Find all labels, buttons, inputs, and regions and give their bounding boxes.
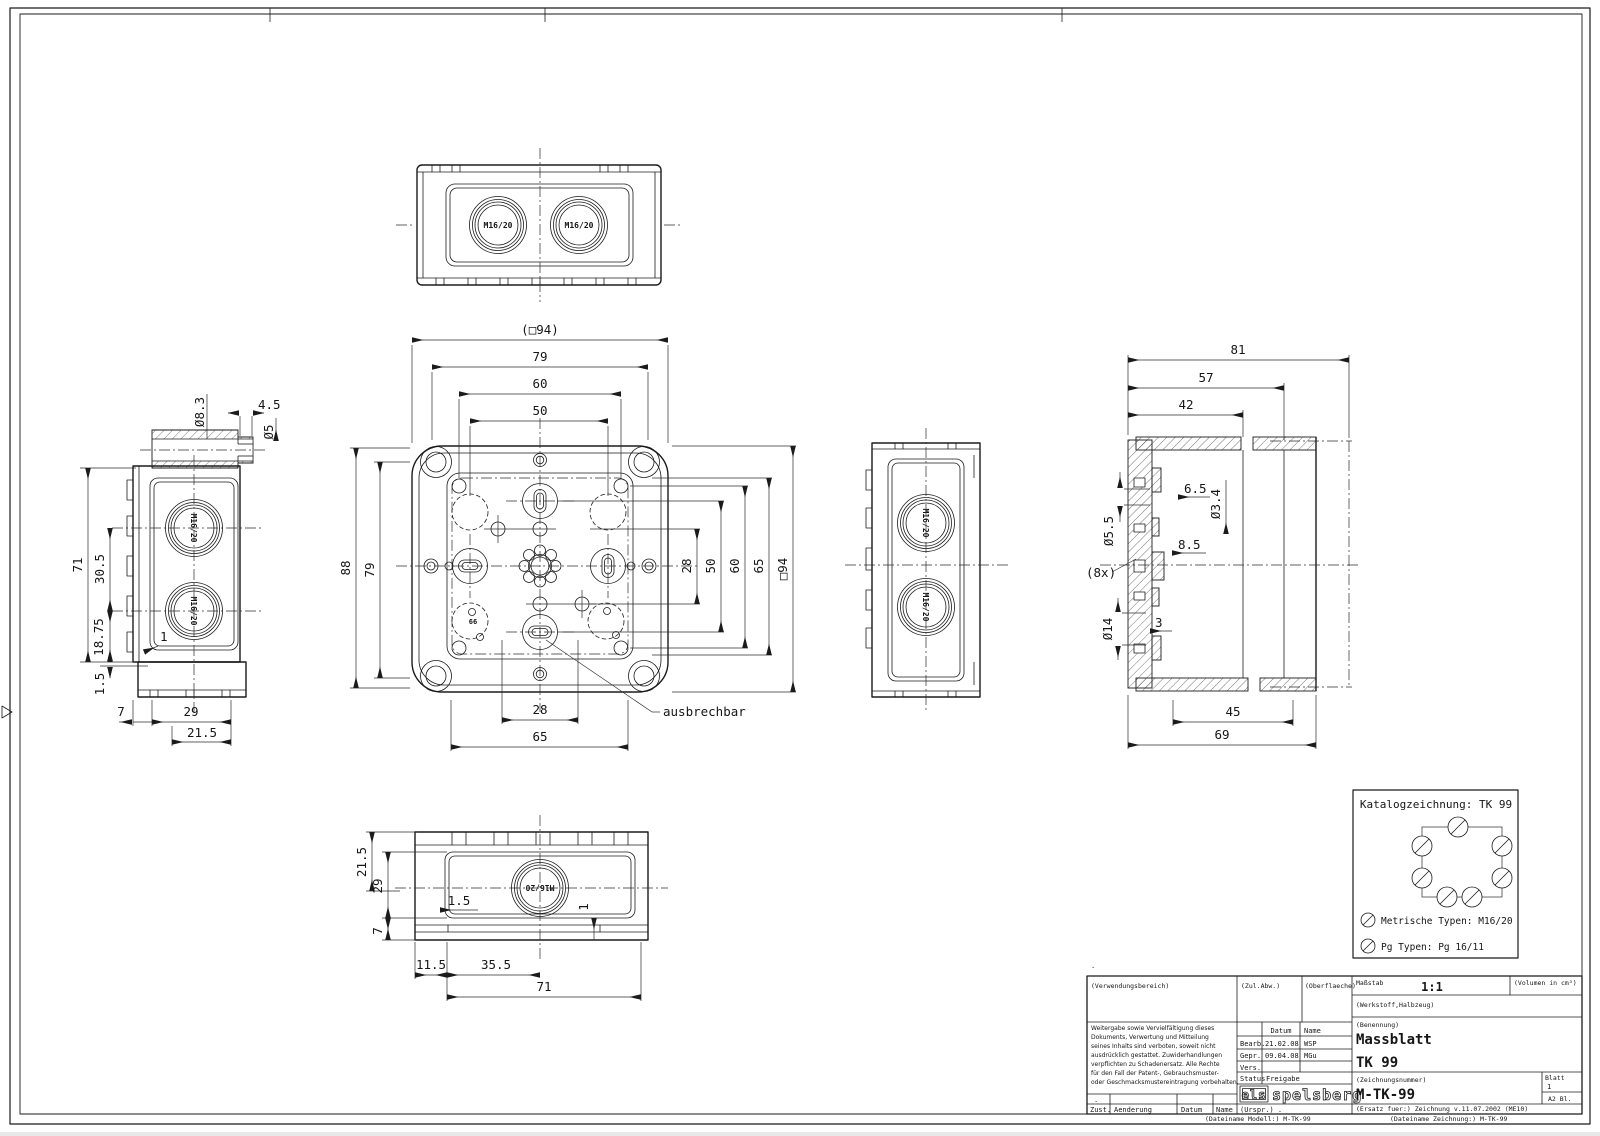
zeichnungsnummer-label: (Zeichnungsnummer) [1356,1076,1426,1084]
front-dims-left: 88 79 [338,448,410,688]
front-dims-right: 28 50 60 65 □94 [560,446,796,692]
legal-line: oder Geschmacksmustereintragung vorbehal… [1091,1079,1239,1086]
left-side-view: Ø8.3 4.5 Ø5 M16/20 [70,394,281,746]
lid-tabs [150,690,230,697]
dim-50-right: 50 [703,558,718,573]
logo-els: els [1242,1088,1267,1102]
dateiname-modell: (Dateiname Modell:) M-TK-99 [1205,1115,1311,1123]
gepr-label: Gepr. [1240,1052,1261,1060]
dot-above: . [1091,962,1095,970]
dim-60: 60 [532,376,547,391]
knockout-symbol-icon [1361,939,1375,953]
dim-94-right: □94 [775,558,790,581]
bearb-datum: 21.02.08 [1265,1040,1299,1048]
dim-8-5: 8.5 [1178,537,1201,552]
zul-abw-label: (Zul.Abw.) [1241,982,1280,990]
massstab-value: 1:1 [1421,980,1443,994]
dim-1-inner: 1 [576,903,591,911]
metric-label: Metrische Typen: M16/20 [1381,916,1513,927]
urspr-label: (Urspr.) . [1240,1106,1282,1114]
dim-4-5: 4.5 [258,397,281,412]
gepr-datum: 09.04.08 [1265,1052,1299,1060]
knockout-label: M16/20 [921,593,930,622]
dim-69: 69 [1214,727,1229,742]
dim-42: 42 [1178,397,1193,412]
bottom-view: M16/20 21.5 29 7 1.5 1 11.5 35.5 [354,815,668,1001]
dim-29: 29 [370,878,385,893]
dim-29: 29 [183,704,198,719]
name-label-2: Name [1216,1106,1233,1114]
zeichnungsnummer-value: M-TK-99 [1356,1087,1415,1103]
dim-d5-5: Ø5.5 [1101,516,1116,546]
benennung-label: (Benennung) [1356,1021,1399,1029]
section-dims-bottom: 45 69 [1128,695,1316,749]
dateiname-zeichnung: (Dateiname Zeichnung:) M-TK-99 [1390,1115,1507,1123]
legal-line: für den Fall der Patent-, Gebrauchsmuste… [1091,1070,1219,1077]
dim-7: 7 [370,927,385,935]
status-label: Status [1240,1075,1265,1083]
knockout-label: M16/20 [484,221,513,230]
pg-row: Pg Typen: Pg 16/11 [1361,939,1484,953]
datum-label-2: Datum [1181,1106,1202,1114]
front-dims-bottom: 28 65 [451,640,628,751]
legal-line: Weitergabe sowie Vervielfältigung dieses [1091,1025,1214,1032]
dot-row: . [1094,1096,1098,1104]
screw-pattern [1412,817,1512,907]
zust-label: Zust. [1090,1106,1111,1114]
legal-text: Weitergabe sowie Vervielfältigung dieses… [1091,1025,1239,1086]
ersatz-label: (Ersatz fuer:) Zeichnung v.11.07.2002 (M… [1356,1105,1528,1113]
dim-7: 7 [117,704,125,719]
dim-88: 88 [338,560,353,575]
metric-row: Metrische Typen: M16/20 [1361,913,1513,927]
benennung-value-1: Massblatt [1356,1032,1432,1048]
dim-21-5: 21.5 [354,847,369,877]
dim-65-right: 65 [751,558,766,573]
dim-65-bottom: 65 [532,729,547,744]
dim-d8-3: Ø8.3 [192,397,207,427]
callout-label: ausbrechbar [663,704,746,719]
aenderung-label: Aenderung [1114,1106,1152,1114]
approval-table: Datum Name Bearb. 21.02.08 WSP Gepr. 09.… [1240,1027,1321,1083]
dim-1-5-inner: 1.5 [448,893,471,908]
dim-28-right: 28 [679,558,694,573]
edge-tabs [866,443,974,697]
spelsberg-logo: els spelsberg [1240,1086,1362,1104]
logo-spelsberg: spelsberg [1272,1086,1362,1104]
dim-94-overall: (□94) [521,322,559,337]
dim-d3-4: Ø3.4 [1208,489,1223,519]
right-side-view: M16/20 M16/20 [845,428,1008,712]
front-view: 66 (□94) 79 60 50 [338,322,796,751]
dim-d14: Ø14 [1100,618,1115,641]
datum-header: Datum [1270,1027,1291,1035]
bearb-name: WSP [1304,1040,1317,1048]
title-block: . (Verwendungsbereich) (Zul.Abw.) (Oberf… [1087,962,1582,1123]
dim-6-5: 6.5 [1184,481,1207,496]
dim-3: 3 [1155,615,1163,630]
volumen-label: (Volumen in cm³) [1514,979,1577,987]
blatt-value: 1 [1547,1083,1551,1091]
gepr-name: MGu [1304,1052,1317,1060]
dim-18-75: 18.75 [91,618,106,656]
knockout-m16-20: M16/20 [470,197,527,254]
bottom-view-dims: 21.5 29 7 1.5 1 11.5 35.5 71 [354,832,641,1001]
dim-d5: Ø5 [261,424,276,439]
legal-line: verpflichten zu Schadenersatz. Alle Rech… [1091,1061,1220,1068]
legal-line: ausdrücklich gestattet. Zuwiderhandlunge… [1091,1052,1222,1059]
benennung-value-2: TK 99 [1356,1055,1398,1071]
front-dims-top: (□94) 79 60 50 [412,322,668,496]
mounting-lug-section [140,430,268,468]
dim-45: 45 [1225,704,1240,719]
vers-label: Vers. [1240,1064,1261,1072]
knockout-symbol-icon [1361,913,1375,927]
werkstoff-label: (Werkstoff,Halbzeug) [1356,1001,1434,1009]
drawing-canvas: M16/20 M16/20 [0,0,1600,1132]
dim-71: 71 [70,557,85,572]
dim-79-left: 79 [362,562,377,577]
catalog-title: Katalogzeichnung: TK 99 [1360,798,1512,811]
oberflaeche-label: (Oberflaeche) [1305,982,1356,990]
dim-79: 79 [532,349,547,364]
name-header: Name [1304,1027,1321,1035]
note-66: 66 [469,618,477,626]
massstab-label: Maßstab [1356,979,1383,987]
pg-label: Pg Typen: Pg 16/11 [1381,942,1484,953]
section-view: 81 57 42 6.5 Ø3.4 Ø5.5 8.5 (8x) Ø14 3 [1086,342,1360,749]
dim-30-5: 30.5 [92,554,107,584]
drawing-sheet: M16/20 M16/20 [0,0,1600,1132]
dim-11-5: 11.5 [416,957,446,972]
section-dims-top: 81 57 42 [1128,342,1349,440]
dim-28-bottom: 28 [532,702,547,717]
left-view-dims: 71 30.5 18.75 1.5 1 7 29 21.5 [70,468,231,746]
catalog-box: Katalogzeichnung: TK 99 Metrische Typen:… [1353,790,1518,958]
dim-21-5: 21.5 [187,725,217,740]
dim-1: 1 [160,629,168,644]
knockout-label: M16/20 [921,509,930,538]
dim-1-5: 1.5 [92,673,107,696]
dim-35-5: 35.5 [481,957,511,972]
knockout-m16-20: M16/20 [551,197,608,254]
count-8x: (8x) [1086,565,1116,580]
dim-71: 71 [536,979,551,994]
verwendungsbereich-label: (Verwendungsbereich) [1091,982,1169,990]
legal-line: seines Inhalts sind verboten, soweit nic… [1091,1043,1216,1050]
knockout-label: M16/20 [565,221,594,230]
top-view: M16/20 M16/20 [396,148,682,302]
dim-60-right: 60 [727,558,742,573]
blatt-label: Blatt [1545,1074,1565,1082]
dim-50: 50 [532,403,547,418]
blatt-format: A2 Bl. [1548,1095,1571,1103]
dim-57: 57 [1198,370,1213,385]
callout-ausbrechbar: ausbrechbar [546,640,746,719]
dim-81: 81 [1230,342,1245,357]
status-value: Freigabe [1266,1075,1300,1083]
edge-tabs [127,480,133,652]
lid-tabs [432,165,636,285]
legal-line: Dokuments, Verwertung und Mitteilung [1091,1034,1209,1041]
bearb-label: Bearb. [1240,1040,1265,1048]
